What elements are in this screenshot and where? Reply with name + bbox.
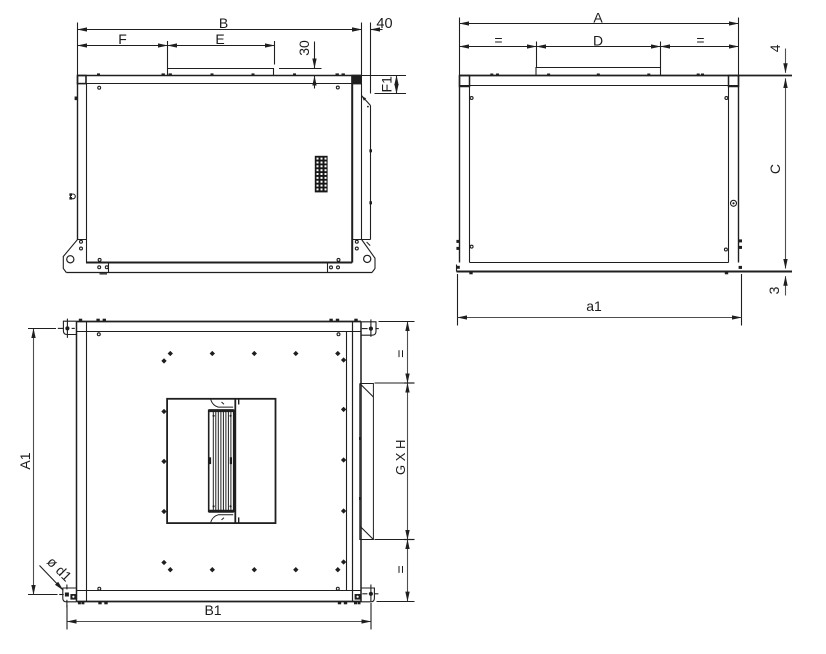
svg-text:B: B xyxy=(219,15,228,31)
svg-text:B1: B1 xyxy=(204,602,221,618)
svg-text:A: A xyxy=(593,10,603,26)
svg-text:3: 3 xyxy=(766,286,782,294)
svg-text:C: C xyxy=(767,164,783,174)
svg-text:30: 30 xyxy=(296,40,312,56)
svg-text:F: F xyxy=(118,31,127,47)
svg-text:=: = xyxy=(696,32,704,48)
svg-text:=: = xyxy=(393,565,409,573)
svg-text:ø d1: ø d1 xyxy=(44,553,75,584)
svg-text:A1: A1 xyxy=(17,452,33,469)
svg-text:G X H: G X H xyxy=(393,440,408,475)
svg-text:=: = xyxy=(393,350,409,358)
svg-text:a1: a1 xyxy=(586,298,602,314)
svg-text:4: 4 xyxy=(767,44,783,52)
svg-text:D: D xyxy=(593,32,603,48)
svg-text:=: = xyxy=(494,32,502,48)
svg-text:40: 40 xyxy=(376,16,392,32)
svg-text:F1: F1 xyxy=(379,76,395,93)
svg-text:E: E xyxy=(215,31,224,47)
